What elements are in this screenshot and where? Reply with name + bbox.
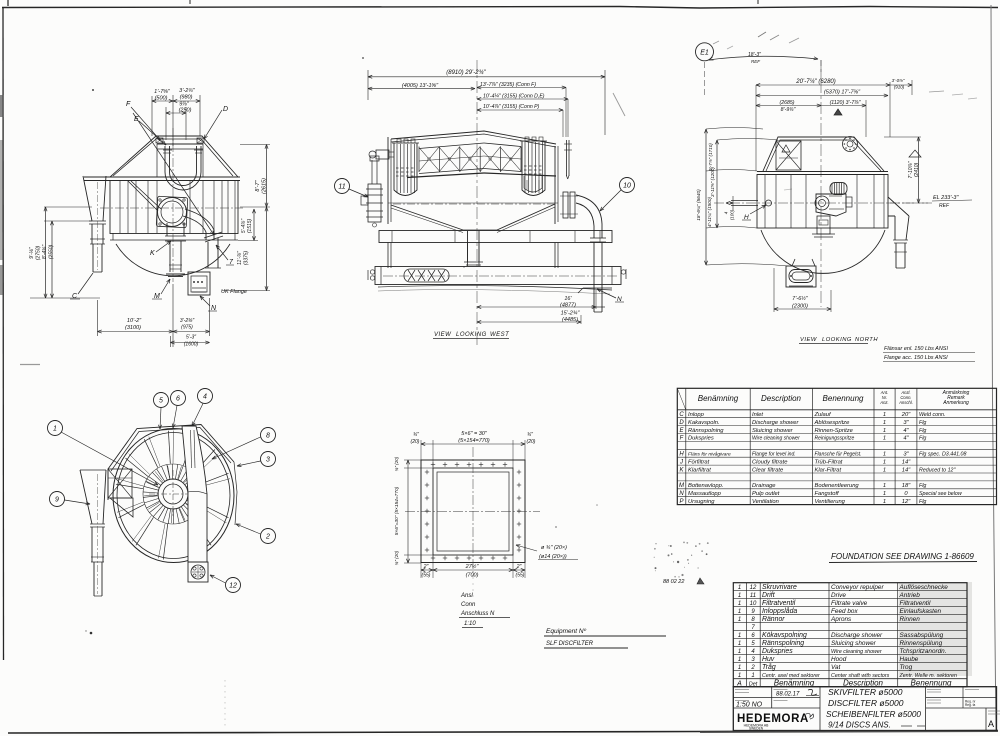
svg-text:Flange for level ind.: Flange for level ind. [752, 452, 796, 458]
svg-text:27½": 27½" [465, 563, 480, 570]
svg-text:EL 233’-3": EL 233’-3" [933, 195, 959, 201]
svg-text:Sluicing shower: Sluicing shower [831, 640, 877, 647]
svg-text:3’-2⅜": 3’-2⅜" [180, 318, 195, 324]
svg-text:1: 1 [738, 601, 741, 607]
svg-text:Tchspritzanordn.: Tchspritzanordn. [900, 648, 947, 655]
svg-text:1: 1 [738, 673, 741, 679]
svg-text:Benämning: Benämning [774, 678, 815, 687]
svg-text:2": 2" [423, 564, 429, 570]
svg-text:(2300): (2300) [792, 304, 808, 310]
svg-text:2: 2 [750, 665, 755, 671]
svg-text:E1: E1 [700, 49, 709, 56]
svg-text:Equipment Nº: Equipment Nº [546, 628, 587, 635]
svg-text:1: 1 [883, 491, 886, 497]
svg-text:20’-7¼" (6280): 20’-7¼" (6280) [795, 79, 836, 85]
svg-text:Rinnen: Rinnen [900, 616, 921, 623]
svg-text:88 02 22: 88 02 22 [663, 579, 684, 585]
svg-text:Flansche für Pegelst.: Flansche für Pegelst. [815, 452, 862, 458]
svg-text:4: 4 [203, 394, 207, 401]
svg-text:(500): (500) [155, 96, 168, 102]
svg-text:LOOKING: LOOKING [822, 337, 852, 343]
svg-text:Sassabspülung: Sassabspülung [900, 632, 944, 639]
svg-text:Anz.: Anz. [879, 400, 888, 405]
svg-text:1: 1 [883, 412, 886, 418]
svg-text:Förfiltrat: Förfiltrat [688, 459, 710, 465]
svg-text:Flg: Flg [919, 436, 926, 442]
svg-text:10: 10 [750, 601, 757, 607]
svg-text:Tråg: Tråg [762, 663, 776, 671]
svg-text:1: 1 [738, 609, 741, 615]
svg-text:10’-4⅞" (3155) (Conn P): 10’-4⅞" (3155) (Conn P) [483, 104, 540, 110]
svg-text:Inlopp: Inlopp [688, 412, 705, 418]
svg-text:(55): (55) [422, 573, 431, 579]
svg-text:(4005) 13’-1⅝": (4005) 13’-1⅝" [402, 83, 439, 89]
svg-text:3’-2¾": 3’-2¾" [179, 88, 196, 94]
svg-text:¾" (20): ¾" (20) [394, 456, 399, 471]
svg-text:15’-2¾": 15’-2¾" [561, 311, 581, 317]
svg-text:Dukspries: Dukspries [688, 436, 714, 442]
svg-text:Rännspolning: Rännspolning [688, 428, 724, 434]
svg-text:1: 1 [738, 665, 741, 671]
svg-text:¾": ¾" [413, 432, 419, 438]
svg-text:18": 18" [902, 483, 911, 489]
svg-text:1: 1 [883, 436, 886, 442]
svg-text:Bodenentleerung: Bodenentleerung [815, 483, 860, 489]
svg-text:Cloudy filtrate: Cloudy filtrate [752, 459, 788, 465]
svg-text:Hood: Hood [831, 656, 847, 663]
svg-text:Anmerkung: Anmerkung [942, 400, 969, 406]
svg-text:FOUNDATION SEE DRAWING 1: FOUNDATION SEE DRAWING 1-86609 [831, 552, 974, 561]
svg-text:20": 20" [901, 412, 911, 418]
svg-text:12: 12 [229, 583, 237, 590]
svg-text:(2615): (2615) [262, 178, 268, 194]
svg-text:A: A [988, 719, 994, 729]
svg-text:Aprons: Aprons [830, 616, 852, 623]
svg-text:(1120) 3’-7⅞": (1120) 3’-7⅞" [830, 100, 862, 106]
svg-text:1: 1 [53, 426, 57, 433]
svg-text:Skruvrivare: Skruvrivare [762, 584, 797, 591]
svg-text:4’-11¼" (1500): 4’-11¼" (1500) [707, 197, 712, 227]
svg-text:Huv: Huv [762, 656, 775, 663]
svg-text:Flg: Flg [919, 483, 926, 489]
svg-text:5’-7⅜" (1710): 5’-7⅜" (1710) [708, 143, 713, 171]
svg-text:Klar-Filtrat: Klar-Filtrat [815, 467, 842, 473]
svg-text:Flange acc. 150 Lbs ANSI: Flange acc. 150 Lbs ANSI [884, 355, 948, 361]
svg-text:1: 1 [738, 593, 741, 599]
svg-text:14": 14" [902, 459, 911, 465]
svg-text:8’-7": 8’-7" [255, 179, 261, 191]
svg-text:9’-⅛": 9’-⅛" [29, 247, 35, 259]
svg-text:SCHEIBENFILTER ø5000: SCHEIBENFILTER ø5000 [826, 710, 921, 719]
svg-text:1: 1 [738, 585, 741, 591]
svg-text:Inloppslåda: Inloppslåda [762, 607, 797, 615]
svg-text:Discharge shower: Discharge shower [752, 420, 799, 426]
svg-text:18’-3": 18’-3" [748, 52, 761, 58]
svg-text:4": 4" [903, 436, 909, 442]
svg-text:5’-3": 5’-3" [186, 335, 196, 341]
svg-text:2: 2 [265, 534, 270, 541]
svg-text:Antrieb: Antrieb [899, 592, 921, 599]
svg-text:(980): (980) [180, 95, 193, 101]
svg-text:14": 14" [902, 467, 911, 473]
svg-text:Auflöseschnecke: Auflöseschnecke [899, 584, 949, 591]
svg-text:1: 1 [883, 428, 886, 434]
svg-text:1: 1 [883, 452, 886, 458]
svg-text:N: N [679, 491, 684, 497]
svg-text:1: 1 [883, 420, 886, 426]
svg-text:Zulauf: Zulauf [814, 412, 833, 418]
svg-text:8’-4⅜": 8’-4⅜" [42, 245, 48, 260]
svg-text:LOOKING: LOOKING [456, 332, 487, 338]
svg-text:WEST: WEST [490, 332, 510, 338]
svg-text:Conveyor repulper: Conveyor repulper [831, 584, 884, 591]
svg-text:Rännor: Rännor [762, 616, 785, 623]
svg-text:Feed box: Feed box [831, 608, 858, 615]
svg-text:(3375): (3375) [244, 250, 250, 265]
svg-text:Special see below: Special see below [919, 491, 963, 497]
svg-text:Einlaufskasten: Einlaufskasten [900, 608, 942, 615]
svg-text:10’-4¼" (3155) (Conn D,E): 10’-4¼" (3155) (Conn D,E) [483, 94, 545, 100]
svg-text:(ø14 (20×)): (ø14 (20×)) [539, 554, 567, 560]
svg-text:Vat: Vat [831, 664, 841, 671]
svg-text:1: 1 [738, 633, 741, 639]
svg-text:Flg spec. D3.441.08: Flg spec. D3.441.08 [919, 452, 966, 458]
svg-text:Description: Description [843, 678, 884, 687]
svg-text:Flänsar enl. 150 Lbs ANSI: Flänsar enl. 150 Lbs ANSI [884, 346, 948, 352]
svg-text:D: D [679, 420, 684, 426]
svg-text:Rinnenspülung: Rinnenspülung [900, 640, 943, 647]
svg-text:1:10: 1:10 [464, 621, 476, 627]
svg-text:16’: 16’ [564, 296, 572, 302]
svg-text:NORTH: NORTH [855, 337, 878, 343]
svg-text:Klarfiltrat: Klarfiltrat [688, 467, 711, 473]
svg-text:10’-2": 10’-2" [127, 318, 142, 324]
svg-text:SKIVFILTER ø5000: SKIVFILTER ø5000 [828, 687, 903, 697]
svg-text:Rinnen-Spritze: Rinnen-Spritze [815, 428, 854, 434]
svg-text:Anschluss N: Anschluss N [460, 611, 495, 617]
svg-text:1’-7⅝": 1’-7⅝" [154, 89, 171, 95]
svg-text:Fangstoff: Fangstoff [815, 491, 841, 497]
svg-text:1: 1 [738, 649, 741, 655]
svg-text:Dukspries: Dukspries [762, 648, 793, 655]
svg-text:H: H [679, 452, 684, 458]
svg-text:1: 1 [883, 459, 886, 465]
svg-text:Filtratventil: Filtratventil [900, 600, 931, 607]
svg-text:13’-7⅞" (3235) (Conn F): 13’-7⅞" (3235) (Conn F) [480, 82, 536, 88]
svg-text:9: 9 [55, 497, 59, 504]
svg-text:Benennung: Benennung [911, 678, 952, 687]
svg-text:Filtratventil: Filtratventil [762, 600, 796, 607]
svg-text:9/14 DISCS ANS.: 9/14 DISCS ANS. [828, 721, 891, 730]
svg-text:F: F [680, 436, 684, 442]
svg-text:11’-⅞": 11’-⅞" [237, 251, 243, 265]
svg-text:3: 3 [266, 457, 270, 464]
svg-text:Wire cleaning shower: Wire cleaning shower [752, 436, 800, 442]
svg-text:P: P [679, 499, 683, 505]
svg-text:E: E [134, 116, 139, 123]
svg-text:¾": ¾" [527, 432, 533, 438]
svg-text:Ansl: Ansl [460, 593, 473, 599]
svg-text:1: 1 [738, 657, 741, 663]
svg-text:5×6"=30" (5×154=770): 5×6"=30" (5×154=770) [394, 486, 400, 535]
svg-text:18’-6¼" (5640): 18’-6¼" (5640) [696, 189, 702, 221]
svg-text:D: D [223, 106, 228, 113]
svg-text:Kökavspolning: Kökavspolning [762, 632, 807, 639]
svg-text:Conn: Conn [461, 602, 476, 608]
svg-text:1: 1 [883, 499, 886, 505]
svg-text:Ventilation: Ventilation [752, 499, 779, 505]
svg-text:Benämning: Benämning [698, 394, 739, 403]
svg-text:Reduced to 12": Reduced to 12" [919, 467, 956, 473]
svg-text:Haube: Haube [900, 656, 919, 663]
svg-text:Sluicing shower: Sluicing shower [752, 428, 794, 434]
svg-text:(910): (910) [894, 85, 905, 90]
svg-text:VIEW: VIEW [434, 332, 452, 338]
svg-text:(20): (20) [411, 439, 420, 445]
svg-text:F: F [126, 101, 131, 108]
svg-text:Flg: Flg [919, 420, 926, 426]
svg-text:ø ¾" (20×): ø ¾" (20×) [541, 545, 567, 551]
svg-text:Trog: Trog [900, 664, 913, 671]
svg-text:12: 12 [750, 585, 757, 591]
svg-text:Benennung: Benennung [823, 394, 864, 403]
svg-text:(4877): (4877) [560, 303, 576, 309]
svg-text:C: C [679, 412, 684, 418]
svg-text:UK Flange: UK Flange [221, 289, 247, 295]
svg-text:1: 1 [738, 617, 741, 623]
svg-text:Ursugning: Ursugning [688, 499, 715, 505]
svg-text:¾" (20): ¾" (20) [394, 550, 399, 565]
svg-text:Clear filtrate: Clear filtrate [752, 467, 784, 473]
svg-text:7’-6½": 7’-6½" [792, 295, 809, 302]
svg-text:1: 1 [738, 641, 741, 647]
svg-text:11: 11 [338, 184, 345, 191]
svg-text:Pulp outlet: Pulp outlet [752, 491, 780, 497]
svg-text:Discharge shower: Discharge shower [831, 632, 883, 639]
svg-text:5: 5 [159, 398, 163, 405]
svg-text:SLF DISCFILTER: SLF DISCFILTER [546, 641, 594, 647]
svg-text:Massautlopp: Massautlopp [688, 491, 722, 497]
svg-text:1: 1 [883, 483, 886, 489]
svg-text:Ventilierung: Ventilierung [815, 499, 846, 505]
svg-text:10: 10 [623, 183, 631, 190]
svg-text:Drift: Drift [762, 592, 776, 599]
svg-text:(4485): (4485) [562, 317, 578, 323]
svg-text:2": 2" [516, 564, 522, 570]
svg-text:Weld conn.: Weld conn. [919, 412, 945, 418]
svg-text:Drainage: Drainage [752, 483, 776, 489]
svg-text:REF: REF [751, 59, 760, 64]
svg-text:11: 11 [750, 593, 756, 599]
svg-text:Ablösespritze: Ablösespritze [814, 420, 851, 426]
svg-text:Drive: Drive [831, 592, 846, 599]
svg-text:(2685): (2685) [780, 100, 795, 106]
svg-text:Rännspolning: Rännspolning [762, 640, 804, 647]
svg-text:(1600): (1600) [184, 342, 199, 348]
svg-text:1: 1 [751, 673, 754, 679]
svg-text:DISCFILTER ø5000: DISCFILTER ø5000 [828, 698, 904, 708]
svg-text:Inlet: Inlet [752, 412, 763, 418]
svg-text:Flg: Flg [919, 499, 926, 505]
svg-text:Anschl.: Anschl. [898, 400, 913, 405]
svg-text:(20): (20) [527, 439, 536, 445]
svg-text:(1515): (1515) [247, 218, 253, 233]
svg-text:M: M [679, 483, 684, 489]
svg-text:Wire cleaning shower: Wire cleaning shower [831, 649, 882, 655]
svg-text:(100): (100) [730, 209, 735, 220]
svg-text:REF: REF [939, 203, 950, 209]
svg-text:12": 12" [902, 499, 911, 505]
svg-text:8: 8 [266, 433, 270, 440]
svg-text:(2410): (2410) [914, 162, 920, 177]
svg-text:8’-9¾": 8’-9¾" [781, 107, 797, 113]
svg-text:88.02.17: 88.02.17 [776, 692, 800, 698]
svg-text:K: K [150, 250, 155, 257]
svg-text:5×6" = 30": 5×6" = 30" [461, 431, 488, 437]
svg-text:6: 6 [176, 396, 180, 403]
svg-text:Description: Description [761, 394, 802, 403]
svg-text:(55): (55) [516, 573, 525, 579]
svg-text:4": 4" [903, 428, 909, 434]
svg-text:Reinigungsspritze: Reinigungsspritze [815, 436, 855, 442]
svg-text:(700): (700) [466, 573, 479, 579]
svg-text:3’-0⅞": 3’-0⅞" [892, 78, 905, 83]
svg-text:Filtrate valve: Filtrate valve [831, 600, 868, 607]
svg-text:1:50 NO: 1:50 NO [736, 702, 763, 709]
svg-text:(8910) 29’-2¾": (8910) 29’-2¾" [446, 70, 486, 76]
svg-text:(2750): (2750) [36, 245, 42, 260]
svg-text:(3100): (3100) [125, 325, 141, 331]
svg-text:Fläns för nivågivare: Fläns för nivågivare [688, 451, 731, 458]
svg-text:Reg. fa: Reg. fa [965, 703, 976, 707]
svg-text:Trüb-Filtrat: Trüb-Filtrat [815, 459, 843, 465]
svg-text:(2550): (2550) [49, 244, 55, 259]
svg-text:1: 1 [883, 467, 886, 473]
svg-text:Flg: Flg [919, 428, 926, 434]
svg-text:Kakavspoln.: Kakavspoln. [688, 420, 720, 426]
svg-text:(5370) 17’-7⅜": (5370) 17’-7⅜" [824, 90, 861, 96]
svg-text:VIEW: VIEW [800, 337, 817, 343]
svg-text:SWEDEN: SWEDEN [749, 727, 764, 731]
svg-text:3": 3" [903, 420, 909, 426]
svg-text:(5×154=770): (5×154=770) [458, 438, 490, 444]
svg-text:(975): (975) [181, 325, 193, 331]
svg-text:3": 3" [903, 452, 909, 458]
svg-text:Bottenavlopp.: Bottenavlopp. [688, 483, 723, 489]
